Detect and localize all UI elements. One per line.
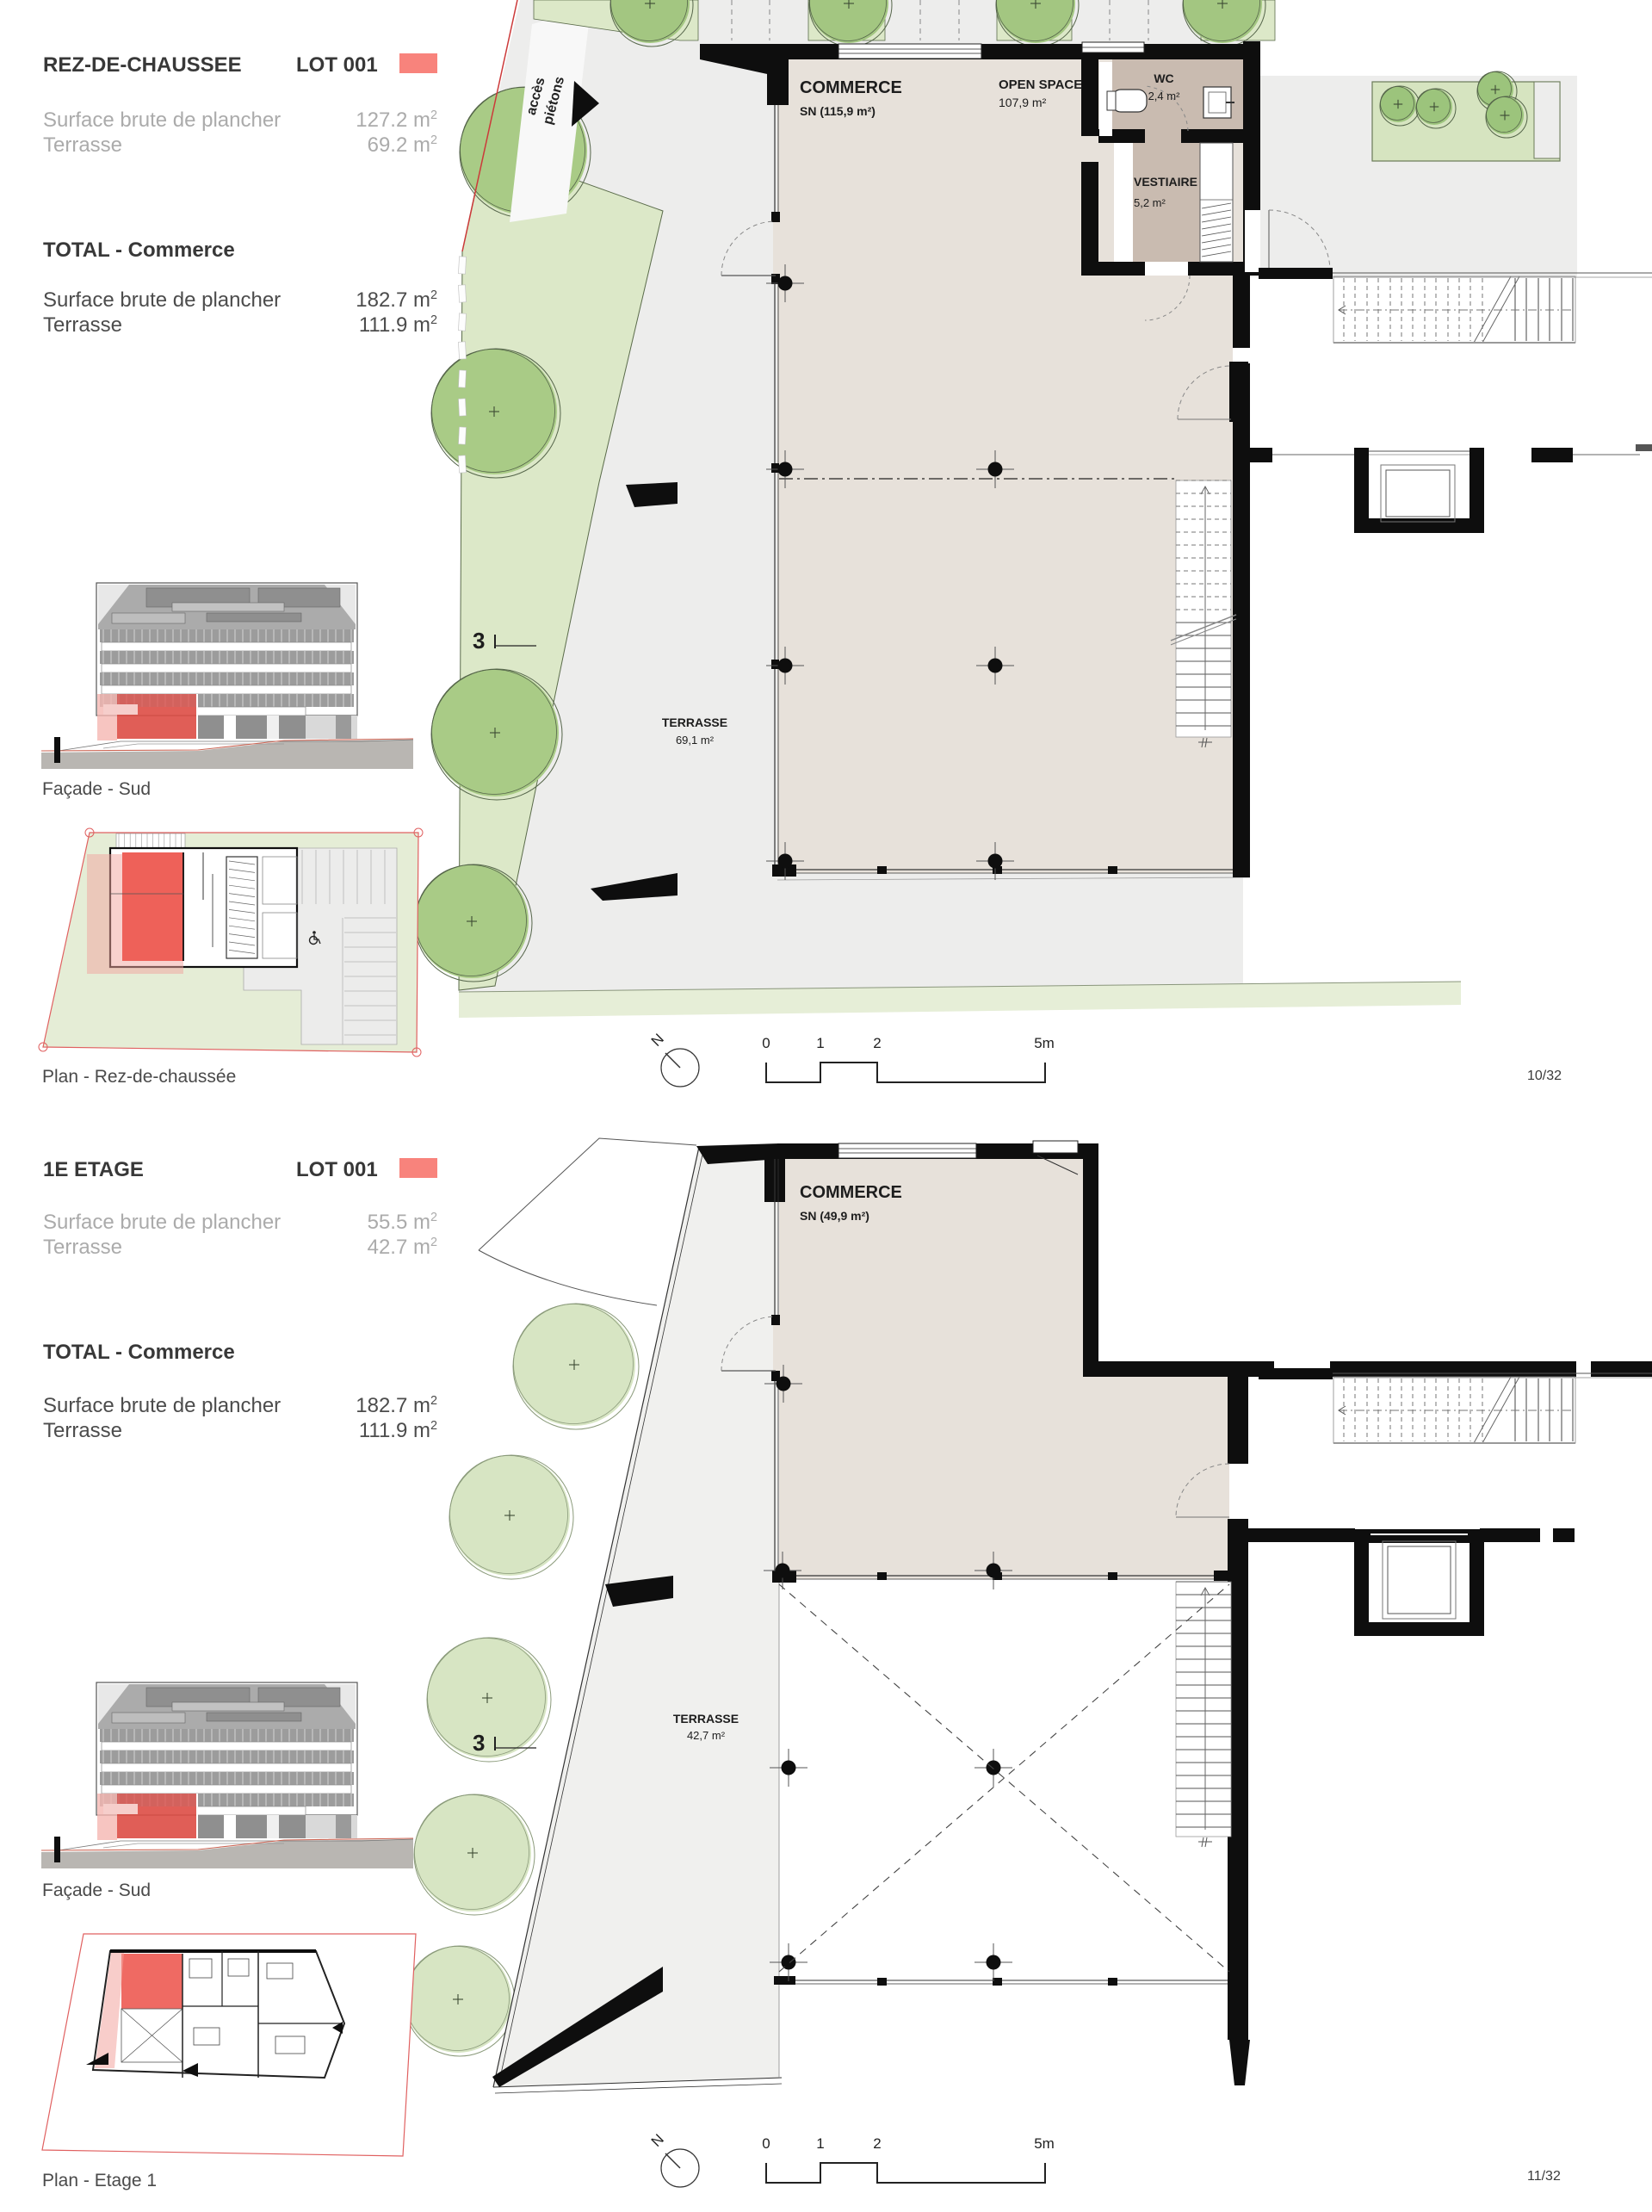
svg-text:COMMERCE: COMMERCE <box>800 78 902 97</box>
svg-text:5m: 5m <box>1034 2135 1055 2152</box>
svg-text:0: 0 <box>762 2135 770 2152</box>
svg-text:WC: WC <box>1154 71 1173 85</box>
svg-text:5,2 m²: 5,2 m² <box>1134 196 1166 209</box>
svg-text:42,7 m²: 42,7 m² <box>687 1729 726 1742</box>
svg-text:N: N <box>648 1031 667 1050</box>
svg-text:COMMERCE: COMMERCE <box>800 1183 902 1202</box>
svg-text:11/32: 11/32 <box>1527 2169 1561 2184</box>
svg-text:VESTIAIRE: VESTIAIRE <box>1134 175 1197 189</box>
svg-text:TERRASSE: TERRASSE <box>662 716 727 729</box>
svg-text:2: 2 <box>873 1035 881 1051</box>
svg-text:SN (49,9 m²): SN (49,9 m²) <box>800 1209 869 1223</box>
svg-text:1: 1 <box>816 1035 824 1051</box>
svg-text:69,1 m²: 69,1 m² <box>676 734 715 747</box>
svg-text:3: 3 <box>473 628 485 654</box>
svg-text:10/32: 10/32 <box>1527 1069 1562 1083</box>
svg-text:2: 2 <box>873 2135 881 2152</box>
svg-text:3: 3 <box>473 1730 485 1756</box>
svg-text:TERRASSE: TERRASSE <box>673 1712 739 1726</box>
svg-text:5m: 5m <box>1034 1035 1055 1051</box>
svg-text:107,9 m²: 107,9 m² <box>999 96 1047 109</box>
svg-text:N: N <box>648 2131 667 2150</box>
svg-text:2,4 m²: 2,4 m² <box>1148 90 1181 102</box>
svg-text:OPEN SPACE: OPEN SPACE <box>999 77 1082 92</box>
svg-text:1: 1 <box>816 2135 824 2152</box>
svg-text:SN (115,9 m²): SN (115,9 m²) <box>800 104 875 118</box>
svg-text:0: 0 <box>762 1035 770 1051</box>
